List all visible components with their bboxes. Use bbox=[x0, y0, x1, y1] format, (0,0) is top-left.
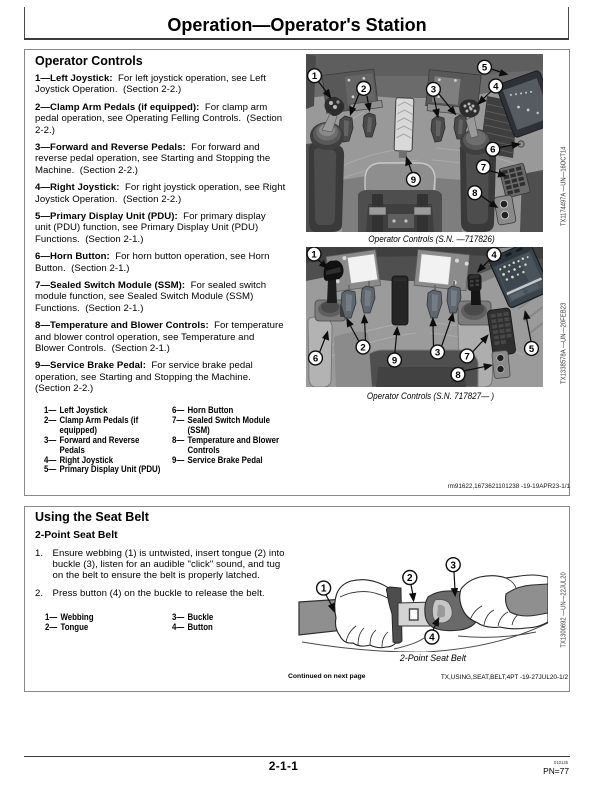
svg-text:7: 7 bbox=[464, 351, 469, 362]
svg-text:6: 6 bbox=[313, 353, 318, 364]
svg-text:3: 3 bbox=[431, 85, 436, 96]
svg-text:1: 1 bbox=[321, 584, 327, 595]
svg-text:4: 4 bbox=[429, 633, 435, 644]
svg-text:2: 2 bbox=[407, 573, 413, 584]
svg-text:5: 5 bbox=[482, 63, 488, 74]
svg-text:9: 9 bbox=[392, 355, 397, 366]
svg-text:3: 3 bbox=[435, 347, 440, 358]
svg-text:8: 8 bbox=[455, 370, 461, 381]
svg-text:4: 4 bbox=[493, 81, 499, 92]
svg-text:1: 1 bbox=[311, 249, 317, 260]
svg-text:2: 2 bbox=[360, 342, 365, 353]
svg-text:8: 8 bbox=[472, 188, 478, 199]
svg-text:1: 1 bbox=[312, 71, 318, 82]
svg-text:7: 7 bbox=[481, 162, 486, 173]
svg-text:5: 5 bbox=[529, 344, 535, 355]
svg-text:6: 6 bbox=[490, 145, 495, 156]
svg-text:2: 2 bbox=[361, 84, 366, 95]
svg-text:TX1338578A —UN—20FEB23: TX1338578A —UN—20FEB23 bbox=[558, 303, 567, 384]
svg-text:9: 9 bbox=[411, 175, 416, 186]
svg-text:3: 3 bbox=[450, 560, 456, 571]
svg-text:4: 4 bbox=[491, 250, 497, 261]
svg-text:TX1174497A —UN—16OCT14: TX1174497A —UN—16OCT14 bbox=[558, 147, 567, 226]
svg-text:TX1300692 —UN—22JUL20: TX1300692 —UN—22JUL20 bbox=[558, 572, 567, 647]
